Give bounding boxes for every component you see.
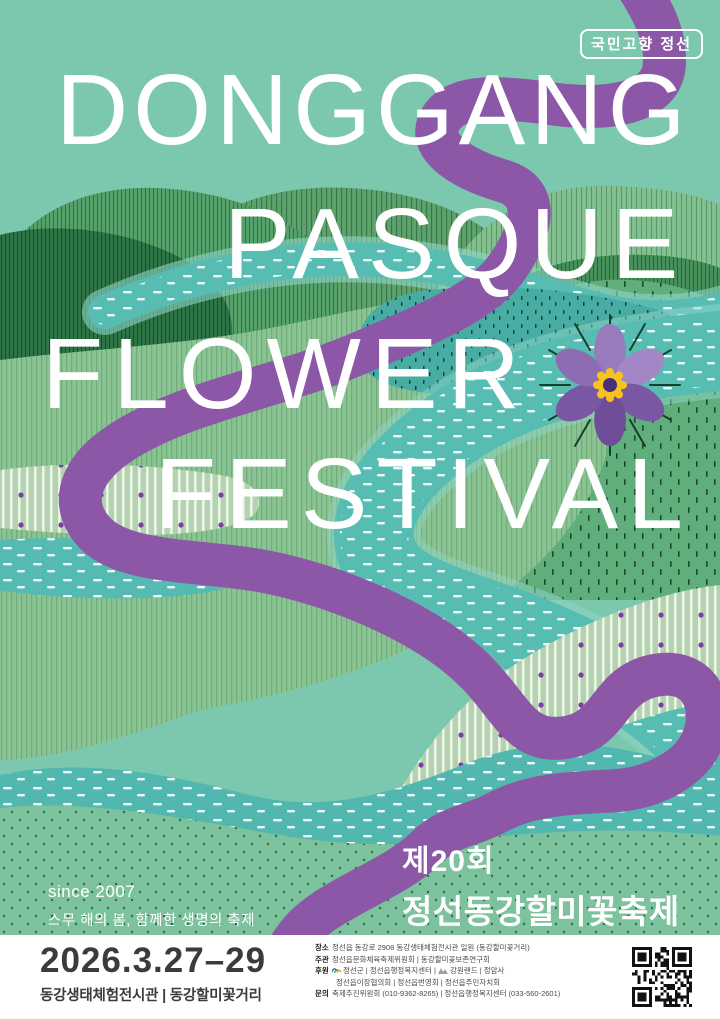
since-tagline: 스무 해의 봄, 함께한 생명의 축제: [48, 909, 255, 930]
jeongseon-county-logo: [332, 967, 341, 976]
footer-band: 2026.3.27–29 동강생태체험전시관 | 동강할미꽃거리 장소정선읍 동…: [0, 935, 720, 1019]
since-year: since 2007: [48, 882, 255, 902]
info-row-location: 장소정선읍 동강로 2908 동강생태체험전시관 일원 (동강할미꽃거리): [315, 944, 615, 952]
info-row-contact: 문의축제추진위원회 (010-9362-8265) | 정선읍행정복지센터 (0…: [315, 990, 615, 998]
date-block: 2026.3.27–29 동강생태체험전시관 | 동강할미꽃거리: [40, 941, 266, 1005]
info-block: 장소정선읍 동강로 2908 동강생태체험전시관 일원 (동강할미꽃거리) 주관…: [315, 944, 615, 1002]
headline-line-4: FESTIVAL: [155, 444, 692, 544]
headline-line-2: PASQUE: [224, 194, 687, 294]
since-block: since 2007 스무 해의 봄, 함께한 생명의 축제: [48, 882, 255, 930]
info-row-sponsors: 후원정선군 | 정선읍행정복지센터 | 강원랜드 | 정암사: [315, 967, 615, 976]
qr-code: [632, 947, 692, 1007]
info-row-organizer: 주관정선읍문화체육축제위원회 | 동강할미꽃보존연구회: [315, 956, 615, 964]
festival-poster: 국민고향 정선 DONGGANG PASQUE FLOWER FESTIVAL …: [0, 0, 720, 1019]
venue-line: 동강생태체험전시관 | 동강할미꽃거리: [40, 984, 266, 1005]
festival-dates: 2026.3.27–29: [40, 941, 266, 981]
festival-name-korean: 정선동강할미꽃축제: [402, 885, 680, 933]
kangwon-land-logo: [438, 967, 448, 976]
korean-title-block: 제20회 정선동강할미꽃축제: [402, 836, 680, 933]
headline-line-3: FLOWER: [42, 324, 530, 424]
edition-number: 제20회: [402, 836, 680, 880]
headline-line-1: DONGGANG: [56, 60, 690, 160]
info-row-sponsors-2: 정선읍이장협의회 | 정선읍번영회 | 정선읍주민자치회: [336, 979, 615, 987]
